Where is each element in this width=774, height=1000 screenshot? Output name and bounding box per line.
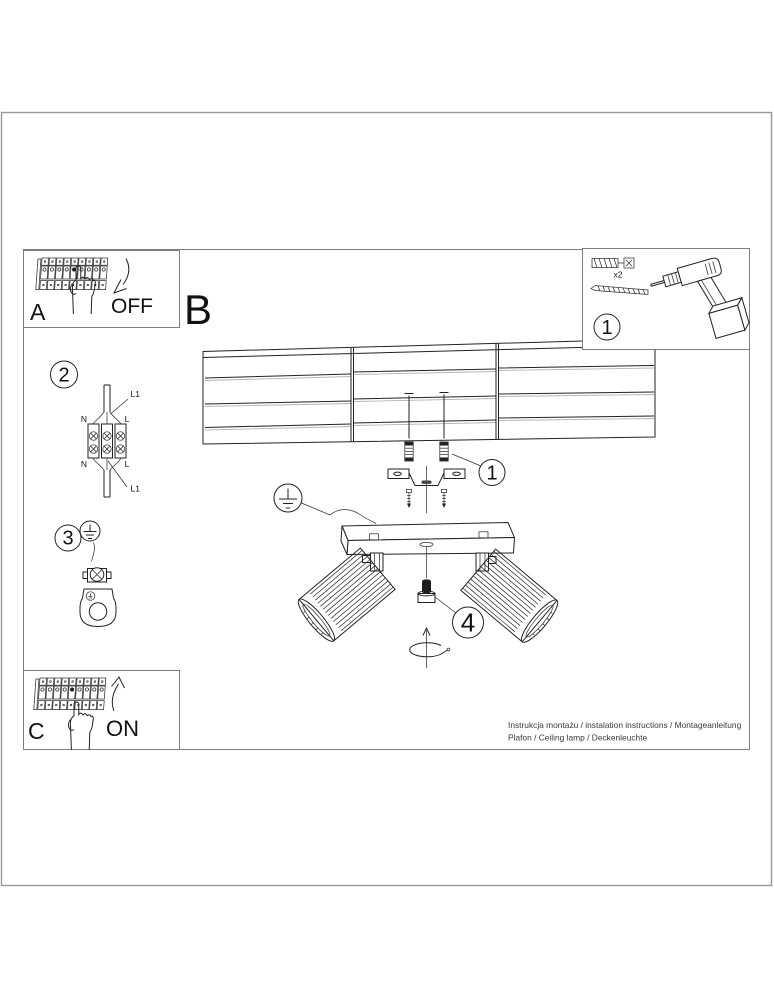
instruction-drawing: 1 [0, 0, 774, 1000]
anchor-quantity-label: x2 [614, 270, 623, 280]
wire-label-l-top: L [125, 414, 130, 424]
section-c-label: C [28, 718, 45, 744]
wall-plug-and-screw-icon [592, 258, 634, 268]
step-adjust-number: 4 [461, 608, 475, 638]
on-label: ON [106, 716, 139, 741]
section-a-label: A [30, 299, 46, 325]
page-border [2, 113, 772, 886]
section-b-label: B [184, 286, 212, 333]
wire-label-l1-top: L1 [131, 389, 141, 399]
footer-line-1: Instrukcja montażu / instalation instruc… [508, 720, 742, 730]
footer-line-2: Plafon / Ceiling lamp / Deckenleuchte [508, 733, 648, 743]
step-wiring-number: 2 [58, 365, 69, 387]
off-label: OFF [111, 295, 153, 318]
step-earth-number: 3 [62, 528, 73, 550]
wire-label-n-bottom: N [81, 459, 87, 469]
wire-label-n-top: N [81, 414, 87, 424]
step-tools-number: 1 [601, 317, 612, 339]
instruction-sheet: 1 [0, 0, 774, 1000]
wire-label-l1-bottom: L1 [131, 484, 141, 494]
wire-label-l-bottom: L [125, 459, 130, 469]
ceiling-bracket-plate [80, 589, 116, 627]
lamp-base [341, 523, 515, 555]
step-mount-number: 1 [486, 463, 497, 485]
